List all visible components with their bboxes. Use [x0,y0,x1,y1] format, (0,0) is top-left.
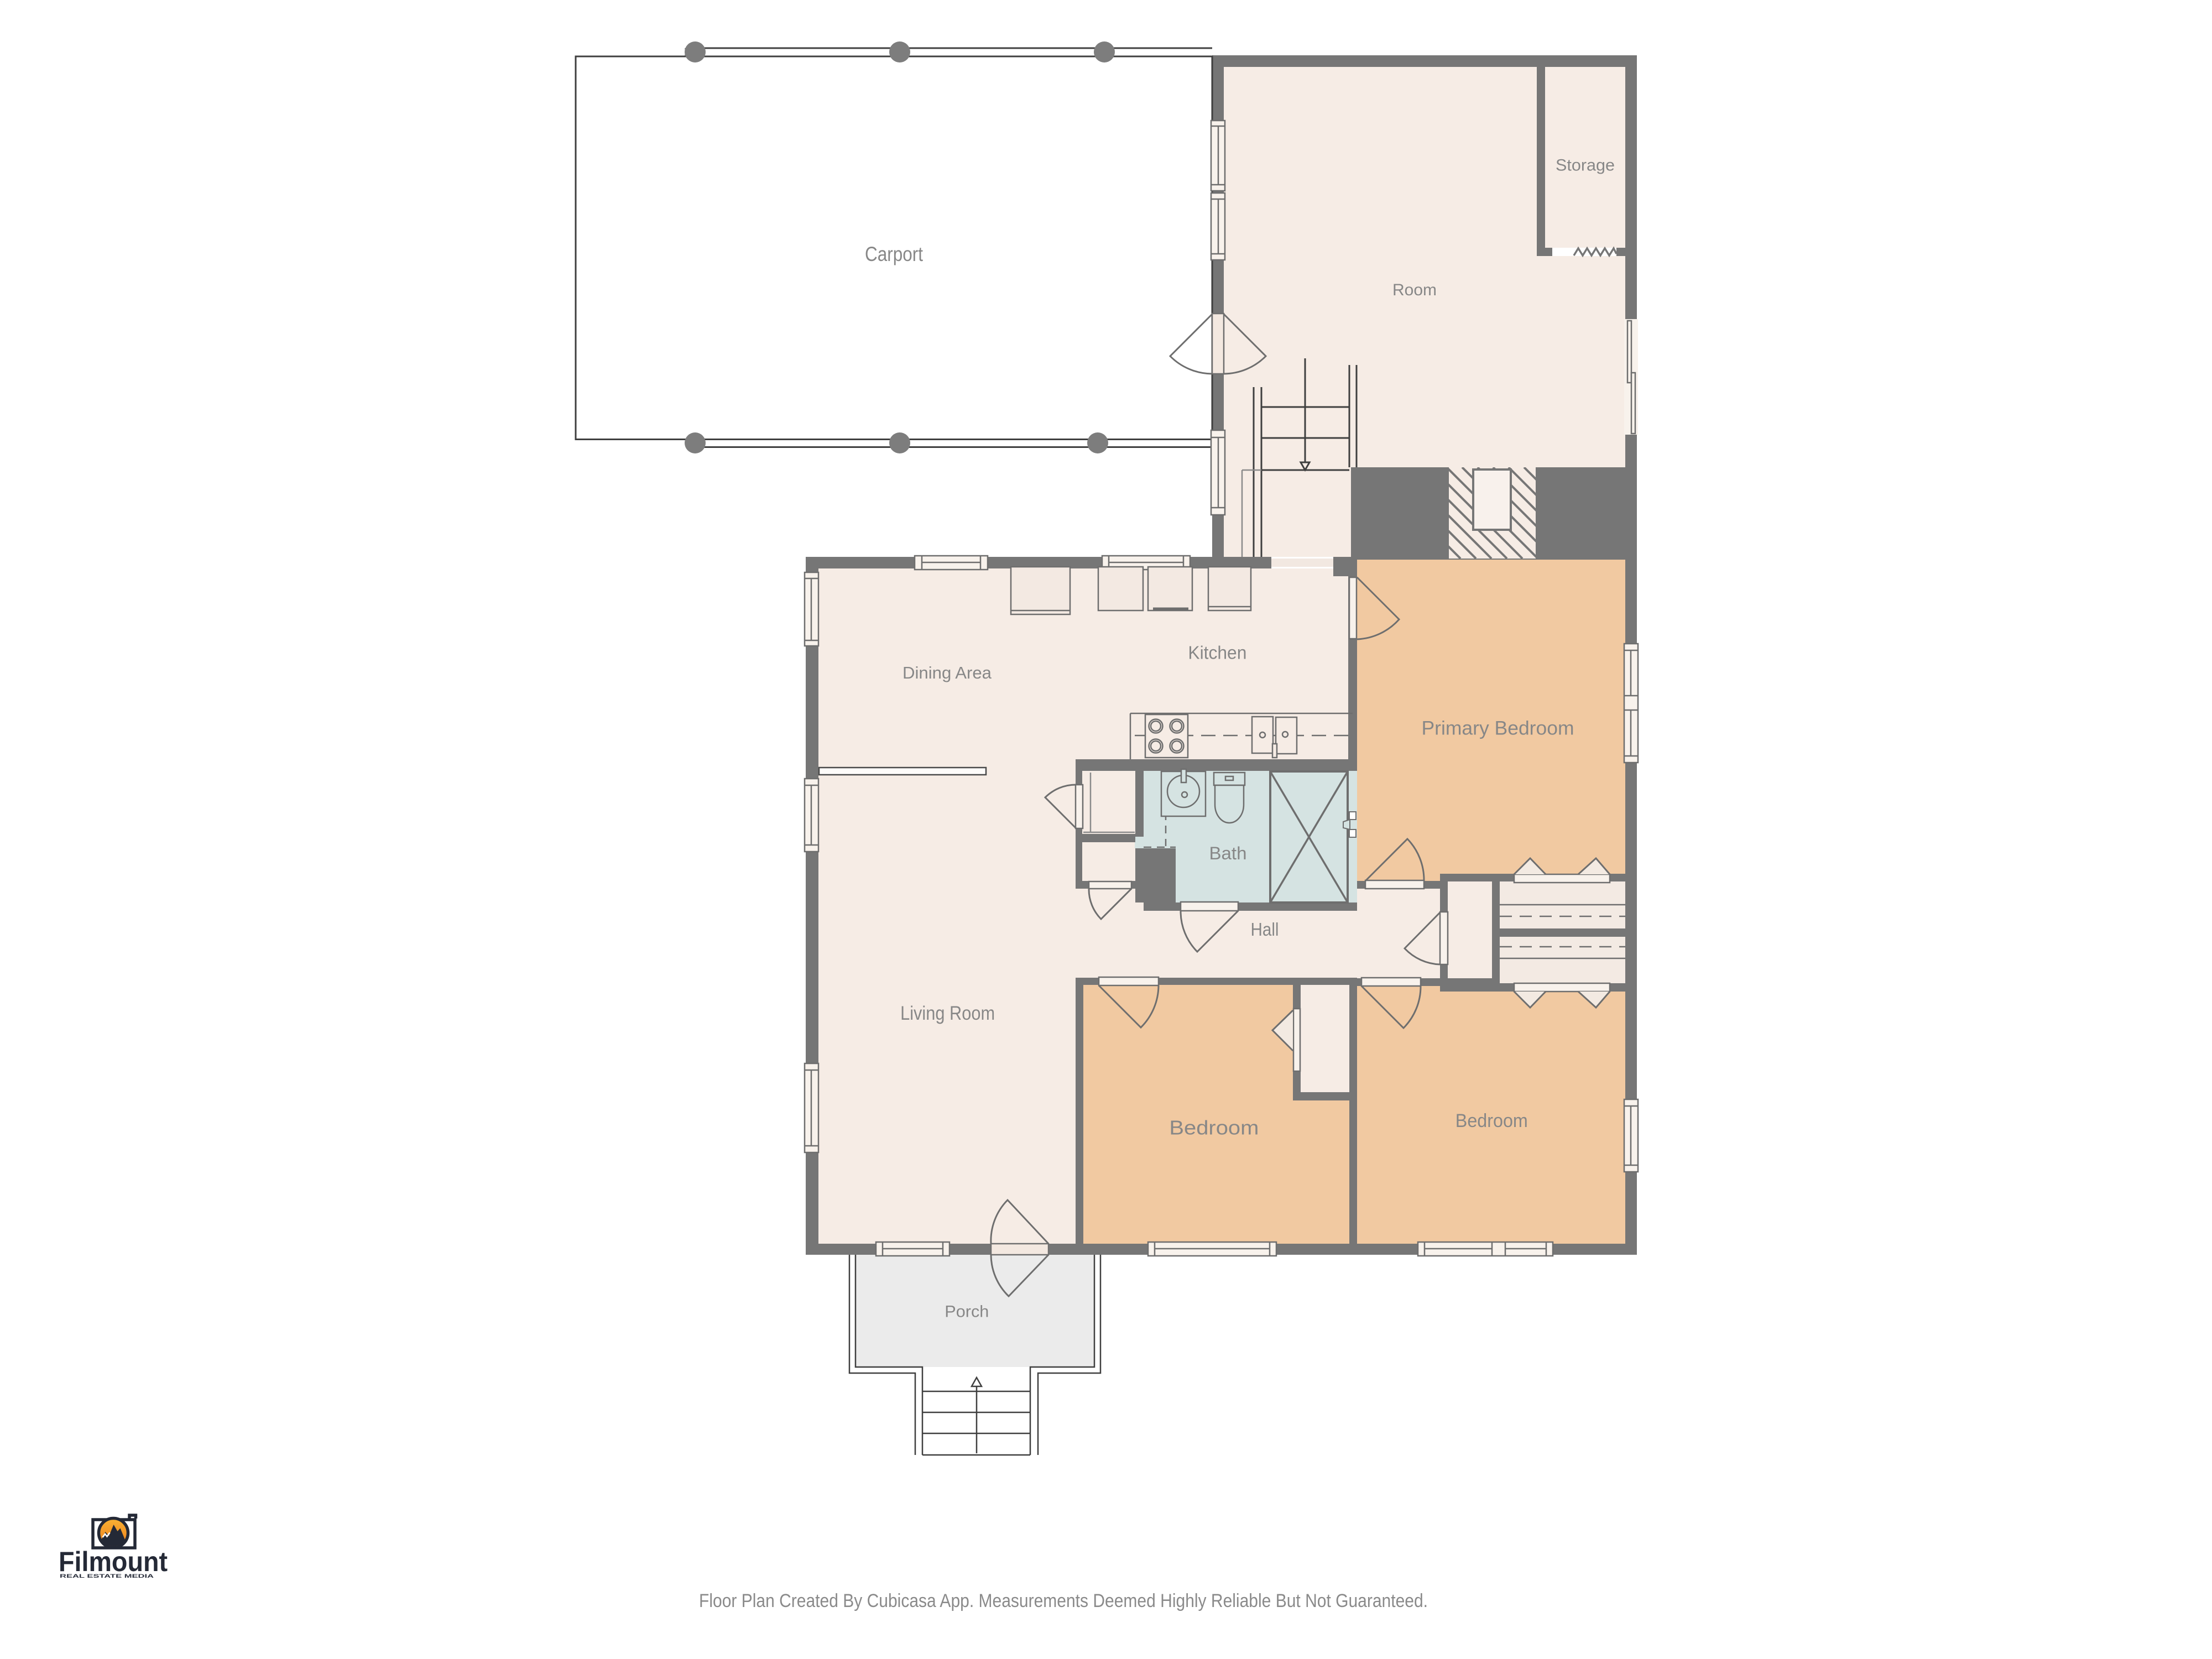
svg-text:REAL ESTATE MEDIA: REAL ESTATE MEDIA [60,1573,154,1579]
svg-text:Hall: Hall [1251,919,1279,940]
svg-text:Room: Room [1392,281,1437,299]
svg-text:Bedroom: Bedroom [1169,1117,1259,1139]
svg-text:Kitchen: Kitchen [1188,643,1246,663]
svg-text:Storage: Storage [1556,156,1615,175]
svg-text:Carport: Carport [865,243,924,265]
svg-text:Bath: Bath [1209,843,1247,863]
svg-text:Filmount: Filmount [59,1546,168,1577]
svg-text:Primary Bedroom: Primary Bedroom [1422,717,1574,739]
svg-text:Porch: Porch [945,1302,989,1321]
svg-text:Bedroom: Bedroom [1455,1110,1528,1131]
svg-text:Dining Area: Dining Area [902,663,992,682]
svg-text:Floor Plan Created By Cubicasa: Floor Plan Created By Cubicasa App. Meas… [699,1590,1428,1611]
svg-text:Living Room: Living Room [900,1003,995,1024]
